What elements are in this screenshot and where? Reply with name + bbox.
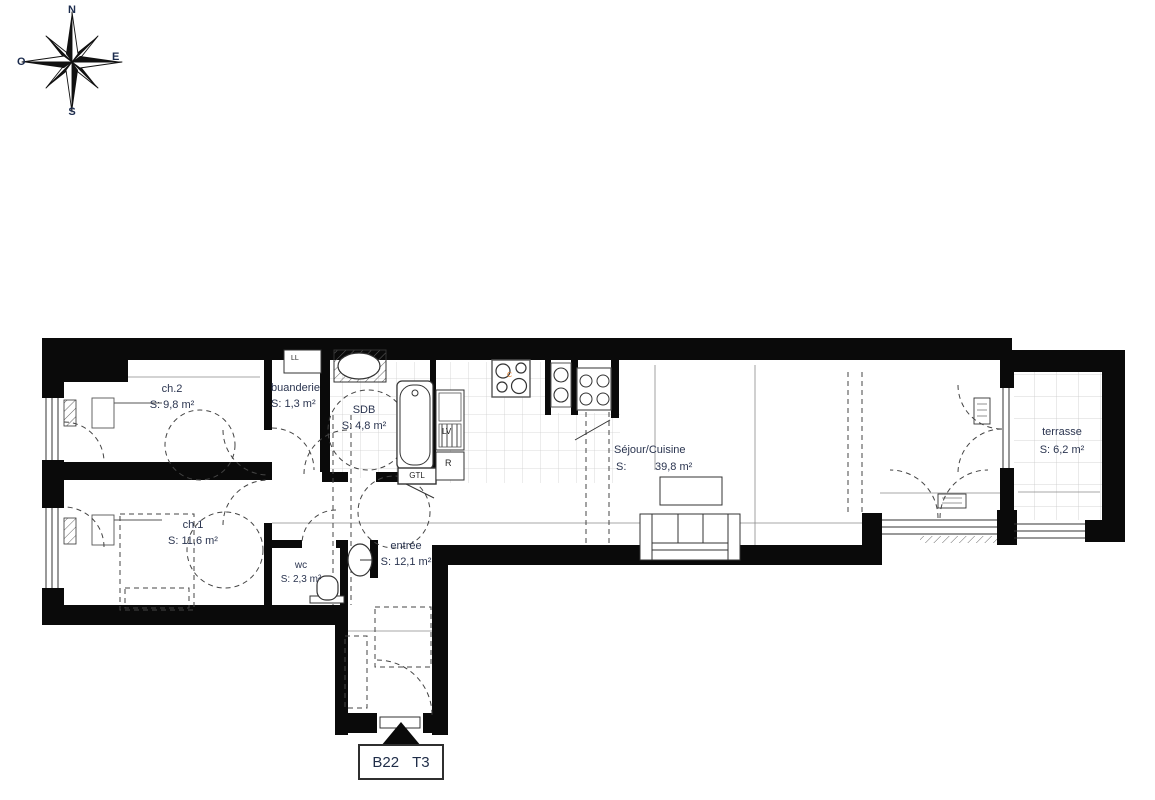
- room-area-sdb: S: 4,8 m²: [342, 420, 387, 432]
- wall-step: [862, 513, 882, 565]
- floor-plan-page: N S E O: [0, 0, 1155, 800]
- wall-sdb-bottom-1: [322, 472, 348, 482]
- wall-terrace-corner: [1085, 520, 1125, 542]
- roller-shutter-box-terrace: [974, 398, 990, 424]
- room-area-buanderie: S: 1,3 m²: [271, 398, 316, 410]
- wall-kitchen-block-1: [545, 360, 551, 415]
- wall-vestibule-right: [432, 545, 448, 735]
- room-area-label-sejour: S:: [616, 461, 626, 473]
- wall-entrance-right: [423, 713, 448, 733]
- room-label-buanderie: buanderie: [271, 382, 320, 394]
- room-label-wc: wc: [295, 560, 307, 572]
- wall-buanderie-left: [264, 360, 272, 430]
- closet-outline-2: [375, 607, 431, 667]
- wall-ch2-ch1: [42, 462, 272, 480]
- unit-label-box: B22 T3: [358, 744, 444, 780]
- wall-left-1: [42, 338, 64, 398]
- wall-bottom-left: [42, 605, 348, 625]
- sink-icon: [551, 363, 571, 407]
- cooktop-label: C: [507, 372, 512, 379]
- wall-top: [42, 338, 1012, 360]
- door-swing-entrance: [377, 660, 432, 715]
- sill-hatch: [920, 536, 997, 543]
- door-swing-wc: [302, 510, 336, 544]
- washing-machine-label: LL: [291, 355, 299, 362]
- washbasin-icon: [338, 353, 380, 379]
- room-area-terrasse: S: 6,2 m²: [1040, 444, 1085, 456]
- dishwasher-label: LV: [442, 427, 451, 436]
- room-label-entree: entrée: [390, 540, 421, 552]
- fridge-label: R: [445, 458, 452, 468]
- wall-entrance-left: [335, 713, 377, 733]
- door-swing-terrace-2: [958, 429, 1002, 473]
- wall-terrace-door-bottom: [1000, 468, 1014, 545]
- wall-buanderie-right: [320, 360, 330, 472]
- sofa-icon: [640, 514, 740, 560]
- room-area-ch1: S: 11,6 m²: [168, 535, 218, 547]
- room-area-entree: S: 12,1 m²: [381, 556, 432, 568]
- room-label-sdb: SDB: [353, 404, 376, 416]
- room-label-sejour: Séjour/Cuisine: [614, 444, 686, 456]
- wall-wc-top-1: [272, 540, 302, 548]
- door-leaf-gtl: [406, 484, 434, 498]
- wall-ch1-right: [264, 523, 272, 613]
- wall-terrace-door-top: [1000, 360, 1014, 388]
- wall-terrace-right: [1102, 350, 1125, 542]
- unit-number: B22: [372, 754, 399, 771]
- bathtub-icon: [397, 381, 433, 469]
- washing-machine-box: [284, 350, 321, 373]
- unit-type: T3: [412, 754, 430, 771]
- shutter-box-ch1: [64, 518, 76, 544]
- wall-kitchen-block-3: [611, 360, 619, 418]
- door-swing-buanderie: [272, 428, 314, 470]
- closet-outline-1: [345, 636, 367, 708]
- gtl-label: GTL: [409, 471, 425, 480]
- room-area-ch2: S: 9,8 m²: [150, 399, 195, 411]
- table-icon: [660, 477, 722, 505]
- room-label-terrasse: terrasse: [1042, 426, 1082, 438]
- door-swing-south-1: [890, 470, 938, 518]
- turning-circle-entree: [358, 476, 430, 548]
- room-label-ch2: ch.2: [162, 383, 183, 395]
- roller-shutter-box-south: [938, 494, 966, 508]
- room-label-ch1: ch.1: [183, 519, 204, 531]
- room-area-value-sejour: 39,8 m²: [655, 461, 692, 473]
- room-area-wc: S: 2,3 m²: [281, 574, 322, 586]
